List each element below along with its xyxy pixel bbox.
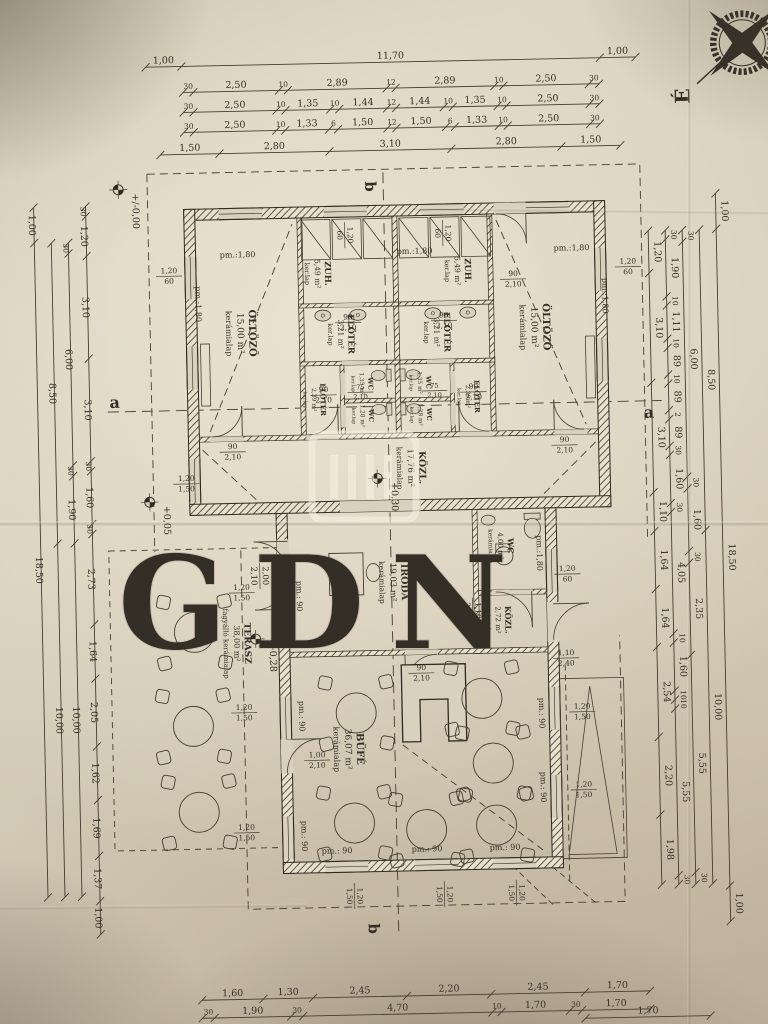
- dim-value: 1,20: [78, 226, 89, 247]
- room-floor: ker.lap: [350, 376, 356, 393]
- opening-width: 1,20: [160, 266, 177, 275]
- dim-value: 10,00: [53, 707, 65, 734]
- dim-value: 1,64: [87, 641, 98, 662]
- dim-value: 1,30: [278, 987, 299, 998]
- room-floor: ker.lap: [350, 408, 356, 425]
- section-marker-a: a: [109, 393, 120, 412]
- window-symbol: [549, 687, 561, 730]
- dim-value: 12: [387, 97, 397, 106]
- room-name: ZUH.: [322, 261, 333, 286]
- sill-height-label: pm.:1,80: [535, 535, 545, 571]
- toilet-tank: [386, 369, 391, 381]
- chair: [155, 689, 170, 704]
- dim-value: 1,69: [90, 817, 101, 838]
- shower-stall-diagonal: [461, 216, 491, 257]
- chair: [221, 773, 237, 789]
- sill-height-label: pm.:1,80: [600, 278, 610, 314]
- door-arc: [554, 399, 585, 430]
- table-with-chairs: [155, 687, 233, 765]
- sill-height-label: pm.:1,80: [554, 243, 590, 253]
- section-marker-b: b: [365, 923, 383, 934]
- opening-label-window_lower: 1,201,50: [345, 883, 365, 909]
- opening-width: 90: [228, 442, 238, 451]
- dim-line: [34, 208, 48, 898]
- dim-value: 1,44: [352, 97, 373, 108]
- dim-value: 89: [672, 426, 683, 438]
- chair: [378, 845, 393, 860]
- dim-value: 30: [184, 122, 194, 131]
- dim-value: 2,50: [224, 100, 245, 111]
- dim-value: 1,60: [691, 509, 702, 530]
- room-name: ZUH.: [462, 258, 473, 283]
- door-opening: [427, 359, 454, 364]
- dim-value: 1,00: [26, 215, 37, 236]
- table: [473, 743, 514, 784]
- opening-height: 2,10: [465, 392, 482, 401]
- opening-label-door_90: 902,10: [551, 435, 577, 455]
- roof-overhang-dashed: [147, 174, 155, 552]
- dim-line: [51, 243, 65, 897]
- dim-value: 1,00: [153, 55, 174, 66]
- room-floor: ker.lap: [443, 260, 451, 283]
- door-arc: [496, 213, 527, 244]
- dim-value: 30: [683, 875, 692, 885]
- sill-height-label: pm.:1,80: [220, 250, 256, 260]
- shower-stall: [301, 219, 331, 260]
- opening-width: 1,20: [575, 780, 592, 789]
- dim-value: 1,10: [657, 501, 668, 522]
- room-floor: ker.lap: [422, 321, 430, 344]
- dim-value: 30: [204, 1008, 214, 1017]
- opening-height: 1,50: [574, 712, 591, 721]
- opening-width: 1,20: [619, 256, 636, 265]
- room-name: ÖLTÖZŐ: [246, 309, 260, 357]
- table: [173, 706, 214, 747]
- opening-height: 2,10: [427, 391, 442, 399]
- room-floor: kerámialap: [518, 305, 528, 351]
- dim-value: 6,00: [688, 348, 699, 369]
- level-value: +/-0,00: [129, 193, 141, 229]
- table: [179, 792, 220, 833]
- dim-value: 10: [498, 115, 508, 124]
- opening-width: 1,20: [559, 564, 576, 573]
- dim-value: 1,33: [466, 115, 487, 126]
- opening-width: 1,20: [236, 703, 253, 712]
- table-with-chairs: [160, 773, 238, 851]
- opening-label-door_90: 902,10: [219, 442, 245, 462]
- dim-value: 10: [678, 633, 687, 643]
- opening-label-window_upper: 1,2060: [156, 266, 182, 286]
- compass-north-label: É: [670, 88, 694, 104]
- window-symbol: [324, 206, 367, 218]
- sill-height-label: pm.: 90: [297, 701, 307, 732]
- dim-value: 2,50: [538, 113, 559, 124]
- dim-line: [68, 243, 82, 897]
- dim-value: 1,35: [297, 98, 318, 109]
- watermark-text: GDN: [118, 529, 533, 679]
- shower-stall-diagonal: [301, 219, 331, 260]
- dim-value: 30: [85, 524, 94, 534]
- window-symbol: [421, 204, 464, 216]
- opening-height: 60: [335, 230, 344, 240]
- dim-value: 1,00: [92, 907, 103, 928]
- section-marker-b: b: [361, 181, 379, 192]
- dim-value: 3,10: [380, 138, 401, 149]
- room-floor: ker.lap: [408, 406, 414, 423]
- room-name: WC: [367, 408, 375, 423]
- dim-value: 2,35: [693, 598, 704, 619]
- chair: [156, 750, 172, 766]
- opening-height: 1,50: [236, 713, 253, 722]
- chair: [215, 687, 231, 703]
- window-symbol: [325, 861, 368, 873]
- sill-height-label: pm.: 90: [299, 821, 309, 852]
- dim-value: 3,10: [79, 297, 90, 318]
- table: [462, 678, 503, 719]
- dim-value: 30: [292, 1006, 302, 1015]
- opening-height: 2,10: [556, 445, 573, 454]
- watermark-logo-bar: [384, 455, 392, 499]
- opening-width: 1,20: [238, 823, 255, 832]
- dim-value: 1,00: [719, 200, 730, 221]
- dim-value: 2,89: [326, 78, 347, 89]
- dim-value: 1,44: [409, 96, 430, 107]
- dim-value: 1,98: [664, 839, 675, 860]
- window-symbol: [546, 549, 558, 592]
- dim-value: 89: [671, 355, 682, 367]
- level-marker: [109, 181, 127, 199]
- opening-height: 2,10: [340, 323, 357, 332]
- dim-chain: [64, 239, 86, 901]
- roof-overhang-dashed: [552, 866, 596, 904]
- opening-width: 90: [343, 312, 353, 321]
- sill-height-label: pm.: 90: [490, 843, 521, 853]
- shower-stall: [363, 218, 393, 259]
- toilet-tank: [387, 403, 392, 415]
- section-marker-a: a: [644, 403, 655, 422]
- dim-value: 2,50: [225, 80, 246, 91]
- room-name: BÜFÉ: [354, 733, 368, 766]
- watermark-layer: GDN: [118, 434, 533, 679]
- sill-height-label: pm.: 90: [537, 698, 547, 729]
- window-symbol: [526, 201, 569, 213]
- dim-value: 10: [494, 75, 504, 84]
- sill-height-label: pm.:1,80: [193, 286, 203, 322]
- room-floor: ker.lap: [303, 263, 311, 286]
- dim-value: 30: [693, 552, 702, 562]
- opening-height: 60: [623, 267, 633, 276]
- dim-value: 30: [686, 231, 695, 241]
- room-area: 1,35 m²: [416, 371, 423, 394]
- table: [476, 805, 517, 846]
- dim-value: 1,62: [89, 763, 100, 784]
- opening-width: 90: [319, 385, 329, 394]
- dim-value: 1,50: [580, 134, 601, 145]
- dim-value: 10: [671, 296, 680, 306]
- opening-width: 1,00: [309, 750, 326, 759]
- table-with-chairs: [388, 790, 466, 868]
- washbasin: [481, 515, 495, 525]
- washbasin: [460, 307, 476, 318]
- dim-value: 89: [672, 391, 683, 403]
- opening-height: 60: [563, 574, 573, 583]
- room-label-oltozo-left: ÖLTÖZŐ15,00 m²kerámialap: [224, 309, 260, 357]
- opening-label-window_upper: 1,2060: [335, 222, 355, 248]
- dim-chain: [198, 987, 654, 1005]
- dim-value: 8,50: [705, 369, 716, 390]
- room-area: 15,00 m²: [234, 313, 245, 354]
- dim-value: 2,50: [537, 93, 558, 104]
- table: [334, 803, 375, 844]
- chair: [515, 724, 531, 740]
- room-name: WC: [366, 376, 374, 391]
- dim-value: 1,64: [659, 607, 670, 628]
- shower-stall: [461, 216, 491, 257]
- dim-value: 2,73: [85, 569, 96, 590]
- dim-value: 30: [183, 82, 193, 91]
- window-symbol: [282, 816, 294, 859]
- dim-value: 1,50: [179, 143, 200, 154]
- chair: [519, 786, 535, 802]
- opening-width: 1,20: [443, 224, 452, 241]
- chair: [217, 749, 232, 764]
- opening-height: 1,50: [178, 484, 195, 493]
- door-opening: [340, 373, 345, 395]
- room-floor: kerámialap: [224, 311, 234, 357]
- dim-value: 10: [672, 374, 681, 384]
- opening-height: 60: [433, 228, 442, 238]
- dim-value: 10: [330, 99, 340, 108]
- dim-value: 10: [679, 699, 688, 709]
- dim-value: 6,00: [63, 349, 74, 370]
- dim-value: 12: [386, 77, 396, 86]
- room-label-kozl-fo: KÖZL.17,76 m²kerámialap: [395, 446, 430, 490]
- compass-needle: [697, 61, 722, 84]
- dim-value: 10: [276, 100, 286, 109]
- blueprint-photo: 1,0011,701,00302,50102,89122,89102,50303…: [0, 0, 768, 1024]
- watermark-logo-bar: [348, 455, 356, 499]
- dim-value: 1,35: [464, 95, 485, 106]
- opening-label-window_lower: 1,201,50: [571, 779, 597, 799]
- dim-value: 1,64: [658, 549, 669, 570]
- dim-value: 1,60: [222, 988, 243, 999]
- opening-height: 2,10: [353, 393, 368, 401]
- door-leaf: [554, 400, 555, 430]
- room-label-zuh-right: ZUH.5,49 m²ker.lap: [443, 256, 473, 286]
- dim-value: 1,00: [733, 893, 744, 914]
- watermark-logo-bar: [366, 455, 374, 499]
- window-symbol: [280, 696, 292, 739]
- opening-width: 1,20: [574, 702, 591, 711]
- level-quadrant: [113, 185, 118, 190]
- dim-value: 30: [691, 478, 700, 488]
- dim-value: 3,10: [82, 399, 93, 420]
- dim-value: 1,60: [673, 468, 684, 489]
- opening-height: 2,10: [309, 761, 326, 770]
- opening-height: 2,10: [505, 279, 522, 288]
- dim-value: 18,50: [33, 557, 45, 584]
- door-opening: [281, 737, 294, 773]
- dim-value: 2: [673, 412, 682, 417]
- dim-value: 30: [589, 73, 599, 82]
- room-area: 5,49 m²: [313, 259, 323, 288]
- dim-value: 30: [184, 102, 194, 111]
- door-arc: [212, 406, 243, 437]
- door-opening: [431, 301, 460, 306]
- dim-value: 1,70: [525, 1000, 546, 1011]
- dim-value: 30: [675, 502, 684, 512]
- chair: [162, 836, 178, 852]
- room-floor: ker.lap: [408, 374, 414, 391]
- door-opening: [494, 202, 527, 214]
- room-area: 1,28 m²: [358, 404, 365, 427]
- door-opening: [341, 405, 346, 427]
- dim-value: 4,70: [387, 1002, 408, 1013]
- room-name: ÖLTÖZŐ: [540, 303, 554, 351]
- opening-width: 1,20: [517, 884, 526, 901]
- dim-value: 6: [331, 119, 336, 128]
- opening-label-window_lower: 1,201,50: [507, 879, 527, 905]
- opening-height: 60: [164, 277, 174, 286]
- opening-label-door_terasz: 1,002,10: [304, 750, 330, 770]
- opening-width: 90: [508, 269, 518, 278]
- sill-height-label: pm.:1,80: [397, 246, 433, 256]
- dim-value: 2,50: [224, 120, 245, 131]
- opening-height: 1,50: [507, 884, 516, 901]
- opening-width: 1,20: [355, 887, 364, 904]
- floor-plan-drawing: 1,0011,701,00302,50102,89122,89102,50303…: [0, 0, 768, 1024]
- chair: [380, 735, 395, 750]
- sill-height-label: pm.: 90: [538, 772, 548, 803]
- ramp-outline: [560, 677, 628, 858]
- dim-value: 1,90: [669, 257, 680, 278]
- dim-value: 5,55: [680, 781, 691, 802]
- dim-value: 2,54: [661, 681, 672, 702]
- door-opening: [334, 303, 363, 308]
- dim-value: 1,00: [607, 46, 628, 57]
- door-opening: [450, 371, 455, 393]
- room-area: 36,07 m²: [342, 729, 353, 770]
- opening-width: 1,20: [346, 227, 355, 244]
- window-symbol: [186, 346, 198, 389]
- opening-width: 90: [560, 435, 570, 444]
- dim-value: 1,90: [66, 499, 77, 520]
- dim-value: 10: [497, 95, 507, 104]
- dim-value: 2,89: [434, 75, 455, 86]
- room-label-wc-right-2: WC1,28 m²ker.lap: [408, 403, 433, 426]
- dim-value: 1,11: [670, 311, 681, 332]
- shower-stall-diagonal: [363, 218, 393, 259]
- dim-value: 8,50: [46, 383, 57, 404]
- dim-value: 1,60: [83, 487, 94, 508]
- opening-width: 90: [439, 310, 449, 319]
- door-leaf: [242, 406, 243, 436]
- dim-value: 2,45: [349, 985, 370, 996]
- opening-label-window_upper: 1,2060: [433, 220, 453, 246]
- bench: [585, 336, 595, 398]
- dim-chain: [47, 239, 69, 901]
- dim-value: 4,05: [675, 562, 686, 583]
- door-opening: [459, 431, 492, 437]
- dim-value: 30: [674, 445, 683, 455]
- dim-value: 30: [590, 113, 600, 122]
- opening-height: 1,50: [238, 833, 255, 842]
- door-leaf: [526, 213, 527, 243]
- wall-segment: [487, 214, 497, 436]
- window-symbol: [551, 775, 563, 818]
- chair: [161, 775, 176, 790]
- dim-value: 6: [448, 116, 453, 125]
- opening-width: 1,10: [558, 648, 575, 657]
- dim-value: 1,33: [296, 118, 317, 129]
- room-floor: kerámialap: [331, 727, 341, 773]
- dim-value: 1,60: [677, 656, 688, 677]
- dim-value: 3,10: [653, 317, 664, 338]
- roof-overhang-dashed: [565, 665, 570, 885]
- dim-value: 30: [669, 230, 678, 240]
- window-symbol: [219, 208, 262, 220]
- table: [336, 693, 377, 734]
- room-floor: kerámialap: [395, 447, 405, 490]
- opening-label-window_upper: 1,2060: [615, 256, 641, 276]
- room-floor: ker.lap: [326, 323, 334, 346]
- level-quadrant: [145, 497, 150, 502]
- door-opening: [340, 500, 421, 513]
- door-opening: [451, 403, 456, 425]
- opening-height: 1,50: [345, 888, 354, 905]
- dim-value: 1,20: [651, 241, 662, 262]
- washbasin: [315, 310, 331, 321]
- dim-value: 5,55: [696, 753, 707, 774]
- chair: [316, 785, 331, 800]
- dim-value: 30: [700, 873, 709, 883]
- bench: [200, 344, 210, 406]
- dim-value: 3,10: [655, 427, 666, 448]
- dim-value: 1,37: [91, 868, 102, 889]
- level-marker: [141, 493, 159, 511]
- opening-height: 2,10: [315, 395, 332, 404]
- room-label-oltozo-right: ÖLTÖZŐ15,00 m²kerámialap: [518, 303, 554, 351]
- dim-value: 30: [84, 461, 93, 471]
- dim-value: 18,50: [726, 543, 738, 570]
- level-quadrant: [118, 190, 123, 195]
- chair: [505, 721, 520, 736]
- room-area: 1,28 m²: [416, 403, 423, 426]
- dim-value: 30: [61, 243, 70, 253]
- dim-value: 12: [387, 117, 397, 126]
- dim-value: 10: [492, 1001, 502, 1010]
- dim-line: [203, 1009, 651, 1018]
- door-leaf: [459, 402, 460, 432]
- dim-value: 2,20: [438, 983, 459, 994]
- room-floor: ker.lap: [455, 388, 461, 405]
- room-label-wc-left-2: WC1,28 m²ker.lap: [350, 404, 375, 427]
- dim-value: 10: [276, 120, 286, 129]
- dim-value: 1,70: [637, 1005, 658, 1016]
- opening-width: 75: [356, 383, 364, 391]
- dim-value: 2,50: [535, 73, 556, 84]
- table-with-chairs: [458, 786, 536, 864]
- opening-height: 2,40: [558, 658, 575, 667]
- toilet-tank: [400, 369, 405, 381]
- room-floor: ker.lap: [301, 391, 307, 408]
- opening-height: 1,50: [435, 886, 444, 903]
- opening-label-window_upper: 1,2060: [554, 564, 580, 584]
- opening-label-window_lower: 1,201,50: [435, 881, 455, 907]
- dim-value: 30: [571, 1000, 581, 1009]
- chair: [223, 835, 238, 850]
- toilet-tank: [401, 403, 406, 415]
